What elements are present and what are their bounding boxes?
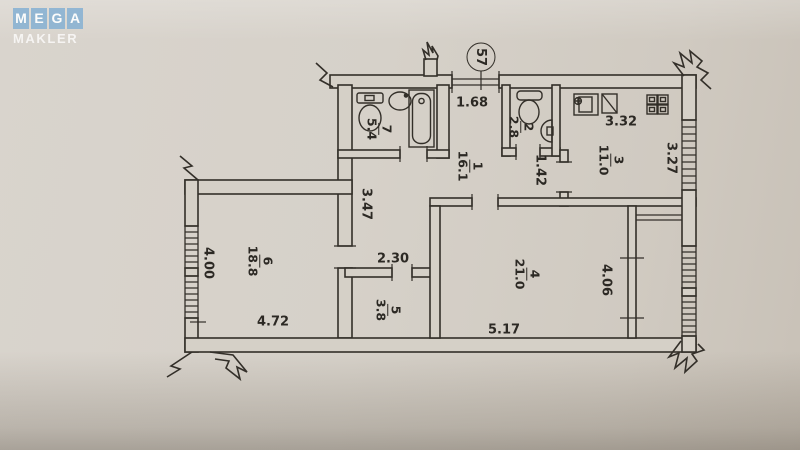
wall-break-icon: [210, 352, 247, 379]
room-area-2: 2.8: [507, 116, 521, 138]
room-label-5: 5 3.8: [374, 299, 403, 321]
room-label-4: 4 21.0: [513, 259, 542, 290]
room-number-2: 2: [521, 121, 536, 134]
room-number-3: 3: [611, 154, 626, 167]
room-area-6: 18.8: [246, 246, 260, 277]
dim-room4-depth: 4.06: [599, 264, 614, 296]
kitchen-fixtures: [574, 94, 668, 115]
room-number-4: 4: [527, 268, 542, 281]
bathtub-inner: [413, 94, 431, 144]
floorplan-photo: M E G A MAKLER: [0, 0, 800, 450]
room-label-7: 7 5.4: [365, 118, 394, 140]
dim-corridor-width: 2.30: [377, 252, 409, 267]
toilet-tank-icon: [357, 93, 383, 103]
balcony-partition: [636, 215, 682, 220]
dim-kitchen-width: 3.32: [605, 115, 637, 130]
unit-number-badge: 57: [467, 43, 496, 72]
room-area-5: 3.8: [374, 299, 388, 321]
walls: [185, 59, 696, 352]
entry-door: [452, 79, 499, 85]
toilet-tank-detail: [365, 96, 374, 101]
room-area-1: 16.1: [456, 151, 470, 182]
toilet-tank-icon: [517, 91, 542, 100]
dimension-tick: [392, 264, 412, 281]
wall-break-icon: [180, 156, 198, 180]
room-label-6: 6 18.8: [246, 246, 275, 277]
dim-room6-width: 4.72: [257, 315, 289, 330]
stove-icon: [647, 95, 668, 114]
room-area-3: 11.0: [597, 145, 611, 176]
room-number-1: 1: [470, 160, 485, 173]
unit-number: 57: [474, 48, 489, 66]
room-number-7: 7: [379, 123, 394, 136]
dim-kitchen-depth: 3.27: [664, 142, 679, 174]
dim-room4-width: 5.17: [488, 323, 520, 338]
dim-room6-depth: 4.00: [201, 247, 216, 279]
room-area-7: 5.4: [365, 118, 379, 140]
room-label-2: 2 2.8: [507, 116, 536, 138]
wall-break-icon: [423, 42, 438, 60]
room-label-1: 1 16.1: [456, 151, 485, 182]
dim-entry-width: 1.68: [456, 96, 488, 111]
room-area-4: 21.0: [513, 259, 527, 290]
bathtub-drain-icon: [419, 98, 424, 103]
wall-break-icon: [167, 352, 192, 377]
dim-wc-nook-width: 1.42: [533, 154, 548, 186]
floorplan-drawing: [0, 0, 800, 450]
counter-diagonal: [602, 94, 617, 113]
dim-hall-depth: 3.47: [359, 188, 374, 220]
dimension-tick: [400, 146, 427, 162]
dimension-tick: [556, 162, 572, 192]
room-number-6: 6: [260, 255, 275, 268]
room-number-5: 5: [388, 304, 403, 317]
dimension-tick: [472, 194, 498, 210]
room-label-3: 3 11.0: [597, 145, 626, 176]
dimension-tick: [452, 71, 499, 93]
sink-tap-icon: [404, 94, 407, 97]
dimension-tick: [334, 246, 356, 268]
